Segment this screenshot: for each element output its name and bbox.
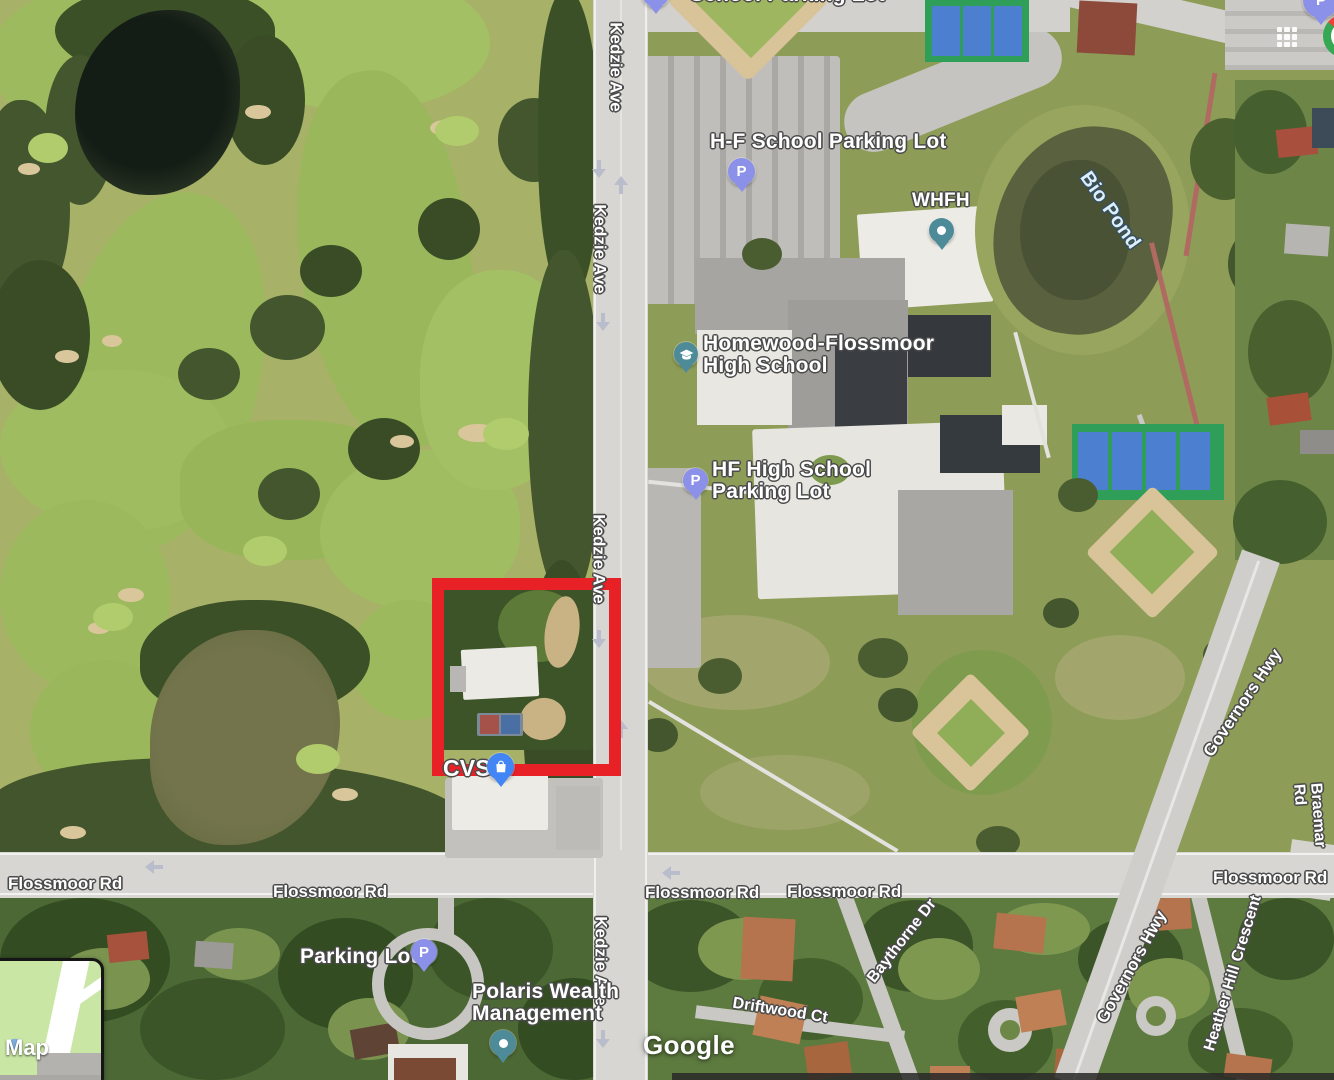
road-label-flossmoor-rd: Flossmoor Rd [645, 884, 759, 902]
arrow-down-icon [592, 160, 606, 178]
road-label-flossmoor-rd: Flossmoor Rd [273, 883, 387, 901]
graduation-cap-icon [679, 347, 694, 362]
arrow-left-icon [145, 860, 163, 874]
arrow-down-icon [596, 313, 610, 331]
school-pin-icon[interactable] [674, 342, 698, 366]
place-pin-icon[interactable] [929, 218, 954, 243]
parking-pin-icon[interactable]: P [411, 939, 437, 965]
road-label-braemar-rd: Braemar Rd [1289, 782, 1327, 849]
highlight-rectangle [432, 578, 621, 776]
road-label-flossmoor-rd: Flossmoor Rd [8, 875, 122, 893]
map-mode-toggle[interactable]: Map [0, 958, 104, 1080]
label-hf-school-parking-lot[interactable]: H-F School Parking Lot [710, 131, 947, 153]
parking-pin-icon[interactable]: P [728, 158, 755, 185]
label-cvs[interactable]: CVS [443, 756, 491, 780]
label-cutoff-top-parking[interactable]: School Parking Lot [690, 0, 885, 6]
road-label-flossmoor-rd: Flossmoor Rd [787, 883, 901, 901]
arrow-up-icon [614, 176, 628, 194]
shopping-bag-icon [494, 760, 508, 774]
label-hf-high-school-parking-lot[interactable]: HF High School Parking Lot [712, 459, 871, 504]
label-whfh[interactable]: WHFH [912, 191, 970, 211]
label-parking-lot[interactable]: Parking Lot [300, 946, 418, 968]
google-watermark: Google [643, 1030, 735, 1061]
road-label-kedzie-ave: Kedzie Ave [607, 22, 625, 111]
label-polaris-wealth[interactable]: Polaris Wealth Management [472, 981, 619, 1026]
road-label-kedzie-ave: Kedzie Ave [591, 204, 609, 293]
arrow-down-icon [596, 1030, 610, 1048]
roof-skylight-grid [1277, 27, 1297, 47]
label-hf-high-school[interactable]: Homewood-Flossmoor High School [703, 333, 934, 378]
map-toggle-label[interactable]: Map [5, 1035, 49, 1061]
arrow-left-icon [662, 866, 680, 880]
road-label-kedzie-ave: Kedzie Ave [590, 514, 608, 603]
road-label-flossmoor-rd: Flossmoor Rd [1213, 869, 1327, 887]
satellite-map[interactable]: Kedzie Ave Kedzie Ave Kedzie Ave Kedzie … [0, 0, 1334, 1080]
shopping-pin-icon[interactable] [487, 753, 514, 780]
attribution-bar [672, 1073, 1334, 1080]
place-pin-icon[interactable] [490, 1030, 516, 1056]
parking-pin-icon[interactable]: P [683, 468, 708, 493]
